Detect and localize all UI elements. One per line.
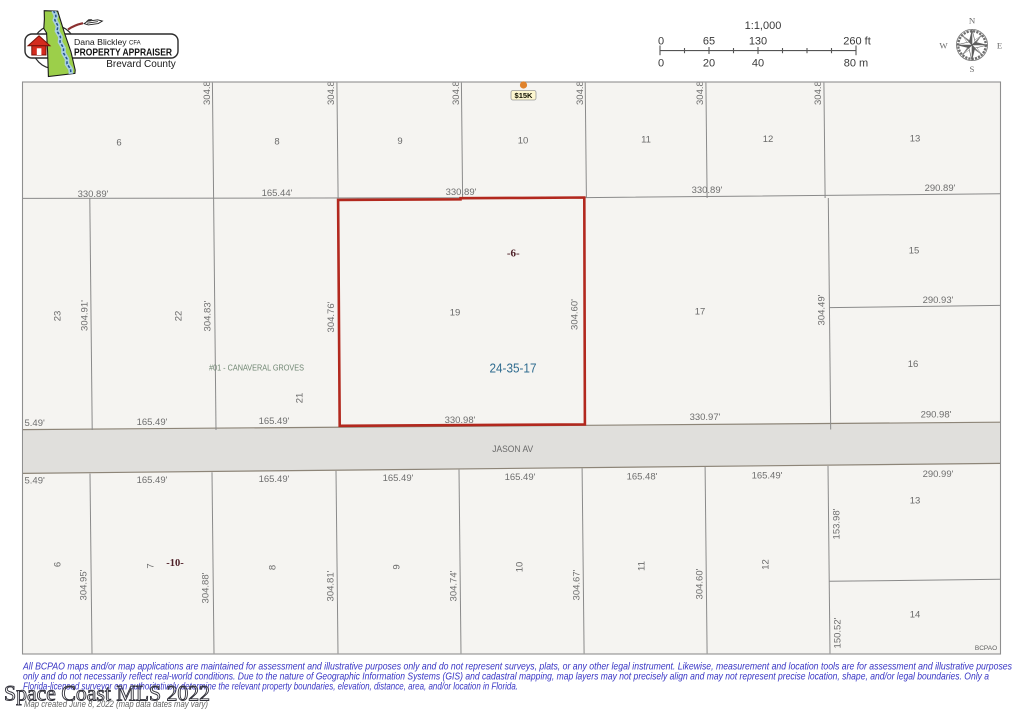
- svg-text:40: 40: [752, 57, 764, 69]
- svg-text:7: 7: [145, 563, 156, 568]
- svg-text:304.83': 304.83': [202, 300, 213, 331]
- svg-text:#01 - CANAVERAL GROVES: #01 - CANAVERAL GROVES: [209, 364, 304, 373]
- svg-text:N: N: [969, 16, 976, 26]
- svg-text:PROPERTY APPRAISER: PROPERTY APPRAISER: [74, 47, 172, 59]
- svg-text:165.49': 165.49': [137, 475, 168, 486]
- svg-text:130: 130: [749, 35, 767, 47]
- svg-text:304.88': 304.88': [326, 74, 337, 105]
- svg-text:330.97': 330.97': [690, 412, 721, 423]
- svg-text:6: 6: [116, 137, 121, 148]
- svg-text:Brevard County: Brevard County: [106, 59, 175, 70]
- svg-text:E: E: [997, 41, 1002, 51]
- svg-text:304.88': 304.88': [575, 74, 586, 105]
- svg-text:304.95': 304.95': [78, 569, 89, 600]
- svg-text:304.88': 304.88': [202, 74, 213, 105]
- svg-text:13: 13: [910, 495, 921, 506]
- svg-text:Space Coast MLS 2022: Space Coast MLS 2022: [4, 681, 210, 706]
- svg-text:165.49': 165.49': [137, 417, 168, 428]
- svg-text:304.74': 304.74': [448, 570, 459, 601]
- svg-text:S: S: [970, 64, 975, 74]
- svg-text:W: W: [939, 41, 948, 51]
- svg-text:0: 0: [658, 35, 664, 47]
- svg-text:330.89': 330.89': [692, 185, 723, 196]
- svg-text:165.49': 165.49': [752, 471, 783, 482]
- svg-text:290.89': 290.89': [925, 183, 956, 194]
- svg-text:165.49': 165.49': [259, 416, 290, 427]
- svg-text:15: 15: [909, 245, 920, 256]
- svg-text:11: 11: [641, 135, 651, 146]
- svg-text:16: 16: [908, 359, 919, 370]
- svg-text:0: 0: [658, 57, 664, 69]
- svg-text:21: 21: [294, 393, 305, 404]
- svg-text:17: 17: [695, 306, 706, 317]
- svg-text:65: 65: [703, 35, 715, 47]
- svg-text:304.88': 304.88': [200, 572, 211, 603]
- svg-text:8: 8: [267, 565, 278, 570]
- svg-text:165.44': 165.44': [262, 188, 293, 199]
- svg-text:260 ft: 260 ft: [843, 35, 871, 47]
- svg-text:5.49': 5.49': [25, 475, 45, 486]
- svg-text:304.88': 304.88': [695, 74, 706, 105]
- svg-text:330.98': 330.98': [445, 415, 476, 426]
- svg-text:304.60': 304.60': [694, 568, 705, 599]
- svg-text:8: 8: [274, 137, 279, 148]
- svg-text:304.60': 304.60': [569, 299, 580, 330]
- svg-text:290.98': 290.98': [921, 409, 952, 420]
- svg-text:JASON AV: JASON AV: [492, 444, 534, 454]
- svg-text:330.89': 330.89': [78, 189, 109, 200]
- svg-text:19: 19: [450, 307, 461, 318]
- svg-text:304.88': 304.88': [813, 74, 824, 105]
- svg-text:10: 10: [518, 135, 529, 146]
- svg-text:24-35-17: 24-35-17: [490, 361, 537, 376]
- svg-text:80 m: 80 m: [844, 57, 868, 69]
- svg-text:Dana Blickley: Dana Blickley: [74, 37, 127, 47]
- svg-text:5.49': 5.49': [25, 418, 45, 429]
- svg-text:12: 12: [760, 559, 771, 570]
- svg-text:23: 23: [52, 311, 63, 322]
- svg-text:14: 14: [910, 609, 921, 620]
- svg-text:11: 11: [636, 561, 647, 571]
- svg-text:304.91': 304.91': [79, 300, 90, 331]
- svg-text:BCPAO: BCPAO: [975, 645, 997, 652]
- svg-text:304.88': 304.88': [451, 74, 462, 105]
- svg-text:330.89': 330.89': [446, 187, 477, 198]
- svg-text:9: 9: [391, 564, 402, 569]
- svg-text:6: 6: [52, 562, 63, 567]
- svg-text:165.49': 165.49': [383, 473, 414, 484]
- svg-text:304.76': 304.76': [326, 301, 337, 332]
- svg-text:$15K: $15K: [515, 91, 534, 100]
- svg-text:-6-: -6-: [507, 247, 520, 259]
- svg-text:165.49': 165.49': [505, 472, 536, 483]
- svg-text:153.98': 153.98': [831, 508, 842, 539]
- svg-text:290.99': 290.99': [923, 469, 954, 480]
- svg-text:165.48': 165.48': [627, 471, 658, 482]
- svg-text:12: 12: [763, 134, 774, 145]
- svg-text:9: 9: [397, 136, 402, 147]
- svg-text:165.49': 165.49': [259, 474, 290, 485]
- svg-text:1:1,000: 1:1,000: [745, 20, 782, 32]
- svg-text:304.49': 304.49': [816, 294, 827, 325]
- svg-text:-10-: -10-: [166, 558, 184, 569]
- svg-text:10: 10: [514, 562, 525, 573]
- svg-text:13: 13: [910, 133, 921, 144]
- svg-text:304.81': 304.81': [325, 570, 336, 601]
- svg-text:304.67': 304.67': [571, 569, 582, 600]
- svg-text:150.52': 150.52': [832, 617, 843, 648]
- svg-text:290.93': 290.93': [923, 295, 954, 306]
- svg-text:22: 22: [173, 311, 184, 322]
- svg-text:20: 20: [703, 57, 715, 69]
